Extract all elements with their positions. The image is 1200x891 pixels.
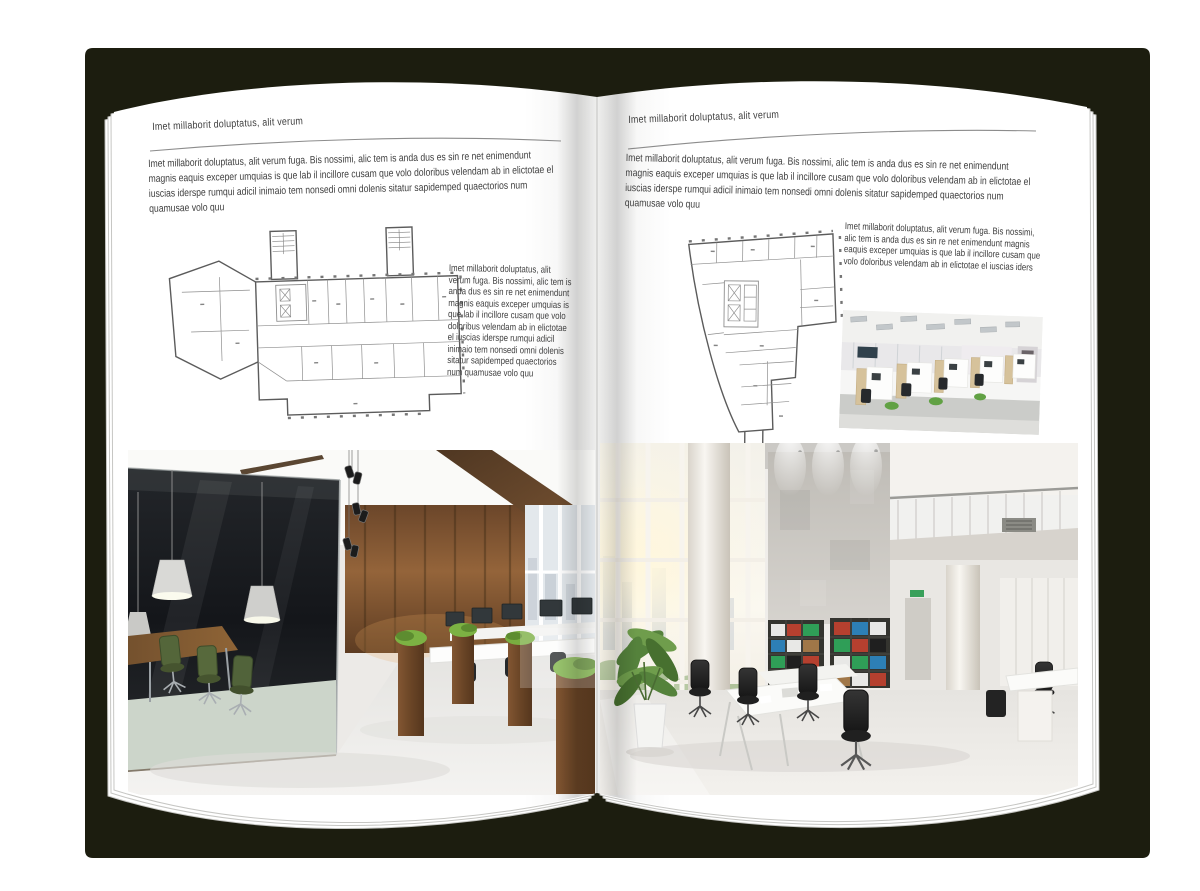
mezzanine-balcony (890, 443, 1078, 574)
book-graphic (0, 0, 1200, 891)
left-office-photo (124, 450, 600, 795)
small-office-photo (839, 310, 1043, 435)
magazine-spread-mockup: Imet millaborit doluptatus, alit verum I… (0, 0, 1200, 891)
left-page-intro-paragraph: Imet millaborit doluptatus, alit verum f… (148, 148, 559, 217)
concrete-feature-wall (768, 436, 890, 624)
right-page-intro-paragraph: Imet millaborit doluptatus, alit verum f… (625, 151, 1036, 220)
right-page-side-text: Imet millaborit doluptatus, alit verum f… (843, 221, 1045, 274)
wood-wall (345, 505, 525, 666)
left-page-side-text: Imet millaborit doluptatus, alit verum f… (447, 263, 572, 380)
